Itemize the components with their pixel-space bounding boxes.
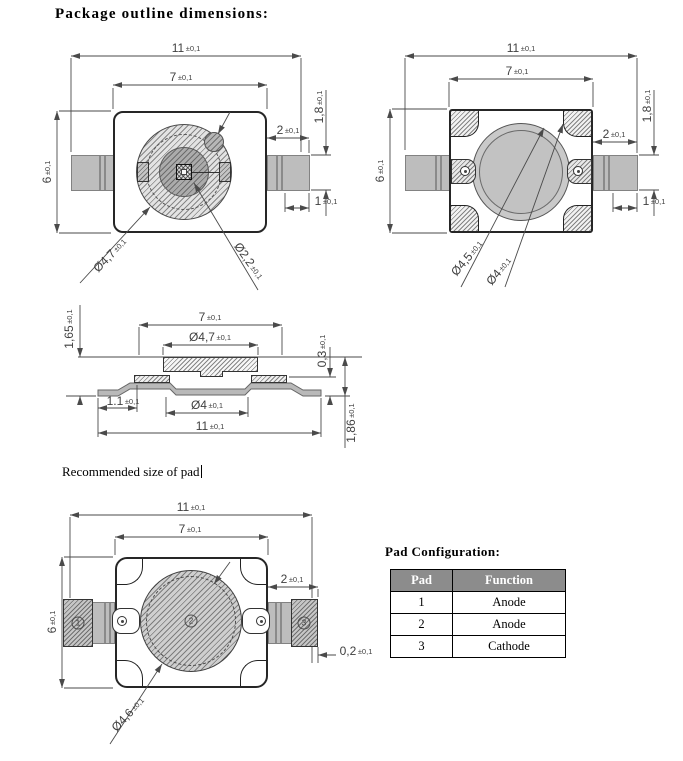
dim-value: 1	[643, 194, 650, 208]
dim-tolerance: ±0,1	[43, 161, 52, 176]
dim-tolerance: ±0,1	[315, 91, 324, 106]
dim-tolerance: ±0,1	[358, 647, 373, 656]
dim-value: 11	[177, 500, 189, 514]
dim-value: 1,8	[312, 107, 326, 124]
dim-tolerance: ±0,1	[643, 90, 652, 105]
dim-tolerance: ±0,1	[376, 160, 385, 175]
dim-value: Ø4	[191, 398, 207, 412]
dim-back-lead-width: 2±0,1	[603, 127, 626, 141]
dim-value: 11	[172, 41, 184, 55]
dim-back-foot-length: 1±0,1	[643, 194, 666, 208]
dim-back-outer-width: 11±0,1	[507, 41, 536, 55]
dim-tolerance: ±0,1	[191, 503, 206, 512]
dim-value: Ø4,7	[189, 330, 215, 344]
dim-side-body-width: 7±0,1	[199, 310, 222, 324]
front-view-dimension-lines	[57, 56, 331, 290]
dim-tolerance: ±0,1	[514, 67, 529, 76]
back-view-dimension-lines	[390, 56, 659, 287]
dim-side-base-dia: Ø4±0,1	[191, 398, 223, 412]
dim-tolerance: ±0,1	[651, 197, 666, 206]
dim-tolerance: ±0,1	[611, 130, 626, 139]
dim-front-body-height: 6±0,1	[40, 161, 54, 184]
dim-pad-width: 2±0,1	[281, 572, 304, 586]
dim-tolerance: ±0,1	[318, 335, 327, 350]
dim-value: 1,8	[640, 106, 654, 123]
dim-tolerance: ±0,1	[216, 333, 231, 342]
dim-tolerance: ±0,1	[125, 397, 140, 406]
dim-value: 6	[45, 627, 59, 634]
dim-side-foot-length: 1.1±0,1	[107, 394, 140, 408]
dim-front-body-width: 7±0,1	[170, 70, 193, 84]
dim-value: 6	[373, 176, 387, 183]
dim-value: 7	[179, 522, 186, 536]
dim-front-outer-width: 11±0,1	[172, 41, 201, 55]
dim-pad-outer-width: 11±0,1	[177, 500, 206, 514]
dim-front-lead-height: 1,8±0,1	[312, 91, 326, 124]
dim-tolerance: ±0,1	[186, 44, 201, 53]
dim-tolerance: ±0,1	[65, 309, 74, 324]
dim-value: 1,86	[344, 419, 358, 442]
dim-back-body-height: 6±0,1	[373, 160, 387, 183]
dim-tolerance: ±0,1	[289, 575, 304, 584]
dim-back-lead-height: 1,8±0,1	[640, 90, 654, 123]
dim-value: 0,3	[315, 351, 329, 368]
dim-side-total-height: 1,86±0,1	[344, 403, 358, 442]
dim-value: 1.1	[107, 394, 124, 408]
dim-value: 0,2	[340, 644, 357, 658]
dim-tolerance: ±0,1	[347, 403, 356, 418]
dim-side-lens-dia: Ø4,7±0,1	[189, 330, 231, 344]
dim-front-lead-width: 2±0,1	[277, 123, 300, 137]
dim-value: 11	[196, 419, 208, 433]
dim-pad-body-height: 6±0,1	[45, 611, 59, 634]
dim-side-outer-width: 11±0,1	[196, 419, 225, 433]
dim-value: 7	[199, 310, 206, 324]
dim-tolerance: ±0,1	[187, 525, 202, 534]
dim-value: 11	[507, 41, 519, 55]
dim-value: 7	[506, 64, 513, 78]
dim-value: 1	[315, 194, 322, 208]
dim-tolerance: ±0,1	[208, 401, 223, 410]
dim-value: 2	[281, 572, 288, 586]
dim-tolerance: ±0,1	[323, 197, 338, 206]
dim-tolerance: ±0,1	[178, 73, 193, 82]
dim-pad-body-width: 7±0,1	[179, 522, 202, 536]
dim-pad-gap: 0,2±0,1	[340, 644, 373, 658]
pad-view-dimension-lines	[62, 515, 336, 744]
dim-side-step-height: 0,3±0,1	[315, 335, 329, 368]
dim-value: 2	[603, 127, 610, 141]
dim-tolerance: ±0,1	[48, 611, 57, 626]
dim-front-foot-length: 1±0,1	[315, 194, 338, 208]
dim-value: 1,65	[62, 325, 76, 348]
datasheet-page: { "page": { "title": "Package outline di…	[0, 0, 683, 761]
dim-back-body-width: 7±0,1	[506, 64, 529, 78]
dim-tolerance: ±0,1	[285, 126, 300, 135]
dim-value: 2	[277, 123, 284, 137]
dim-tolerance: ±0,1	[521, 44, 536, 53]
dim-side-stand-height: 1,65±0,1	[62, 309, 76, 348]
dim-value: 6	[40, 177, 54, 184]
dim-tolerance: ±0,1	[207, 313, 222, 322]
dim-value: 7	[170, 70, 177, 84]
dim-tolerance: ±0,1	[210, 422, 225, 431]
